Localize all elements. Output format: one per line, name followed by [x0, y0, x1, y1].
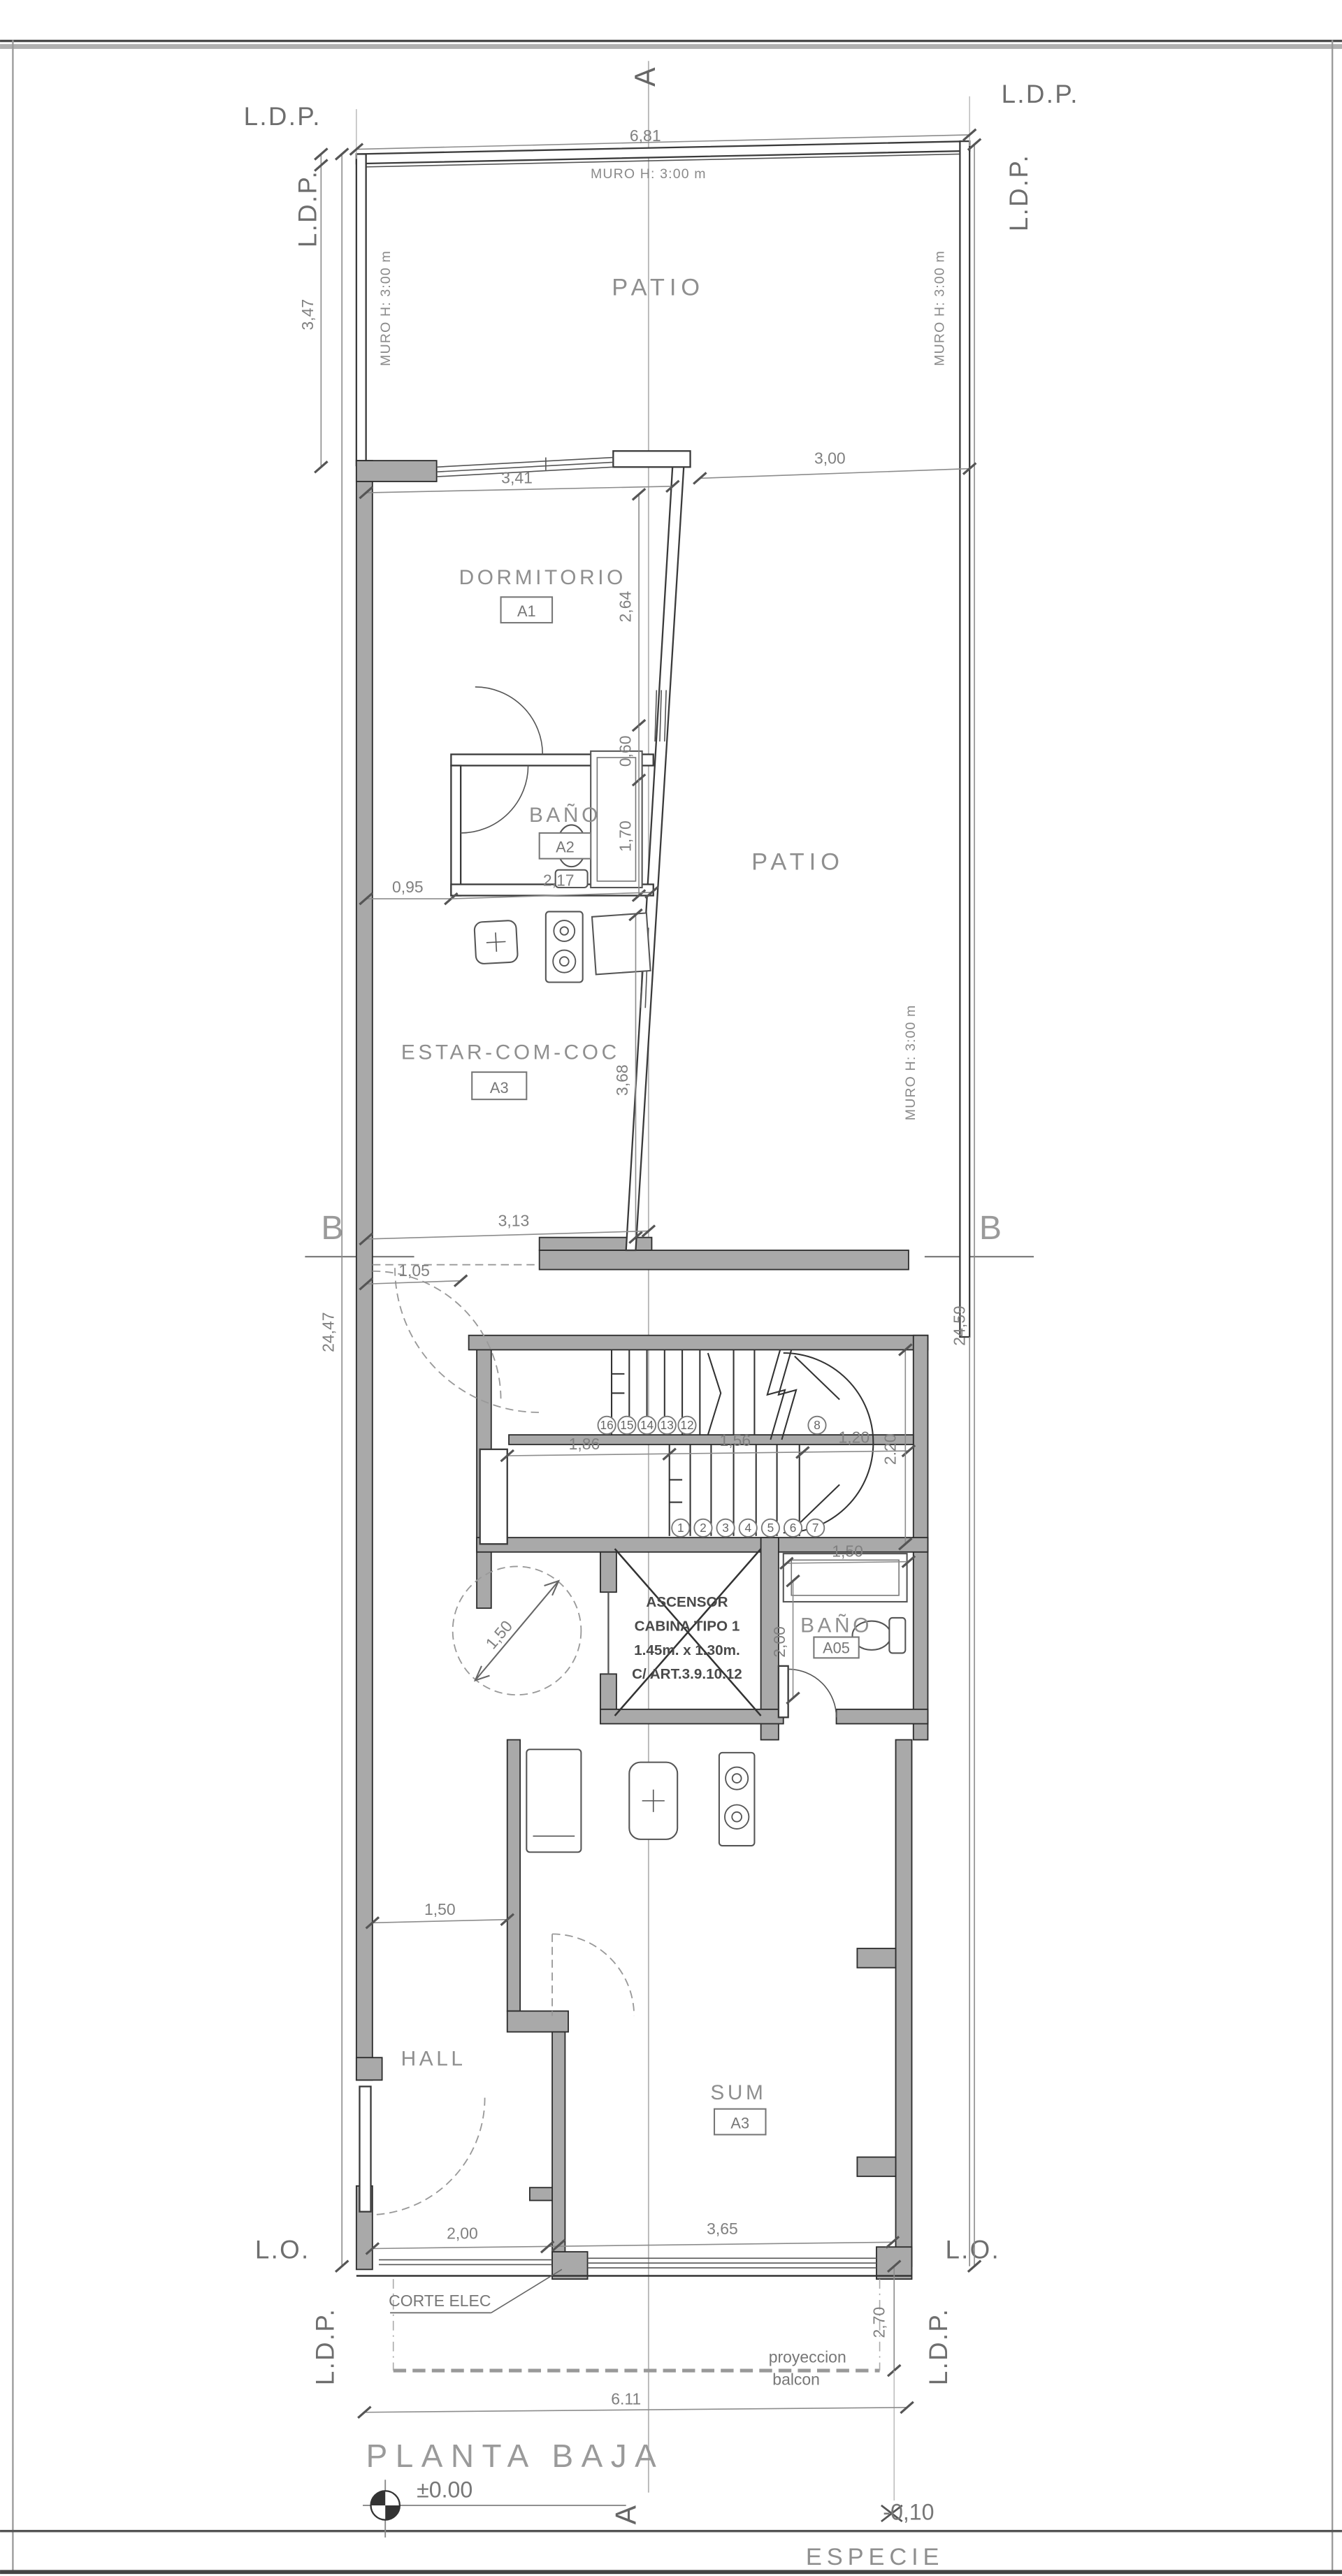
dim-winder: 1,20: [838, 1428, 870, 1447]
room-hall: HALL: [401, 2048, 466, 2071]
dim-patio-width: 3,00: [814, 449, 846, 468]
fridge-icon: [526, 1749, 581, 1852]
section-b-marker-right: B: [979, 1209, 1002, 1247]
dim-bano-width: 2,17: [543, 871, 575, 890]
plan-title: PLANTA BAJA: [366, 2438, 665, 2474]
dim-bano2-depth: 2,00: [770, 1626, 788, 1658]
tread-6: 6: [790, 1521, 797, 1535]
ldp-right-lower: L.D.P.: [924, 2308, 953, 2385]
floor-plan-sheet: A A B B L.D.P. L.D.P. L.D.P. L.D.P. L.D.…: [0, 0, 1342, 2576]
benchmark-icon: [363, 2480, 626, 2538]
title-block: PLANTA BAJA ±0.00 -0,10 ESPECIE ARBOREA: [363, 2438, 951, 2576]
dim-turn-circle: 1,50: [482, 1617, 516, 1653]
tread-5: 5: [767, 1521, 774, 1535]
tread-15: 15: [620, 1418, 633, 1432]
dim-stair-depth: 2.20: [881, 1433, 900, 1465]
turning-circle: 1,50: [453, 1566, 582, 1695]
dim-balcony-depth: 2,70: [870, 2307, 888, 2338]
dim-shower: 1,50: [832, 1542, 863, 1561]
muro-note-right-upper: MURO H: 3:00 m: [932, 250, 947, 366]
section-line-a: A A: [609, 61, 661, 2524]
dim-total-width: 6,81: [630, 126, 661, 145]
walls: [356, 461, 928, 2279]
fixtures: [474, 751, 907, 1852]
tag-dormitorio: A1: [517, 602, 536, 620]
level-zero: ±0.00: [417, 2477, 472, 2502]
dim-dorm-depth: 2,64: [616, 591, 635, 623]
dim-lot-left: 24,47: [319, 1312, 338, 1352]
tag-bano-a05: A05: [823, 1639, 850, 1656]
shower-a05-icon: [784, 1554, 907, 1602]
elevator-label-3: 1.45m. x 1.30m.: [634, 1642, 740, 1658]
tread-2: 2: [700, 1521, 707, 1535]
level-neg-marker-icon: -0,10: [881, 2500, 935, 2525]
tread-3: 3: [722, 1521, 729, 1535]
section-b-marker-left: B: [321, 1209, 343, 1247]
dim-flight: 1,56: [720, 1431, 751, 1449]
ldp-right-upper: L.D.P.: [1004, 154, 1033, 231]
tag-estar: A3: [490, 1079, 509, 1097]
sum-stove-icon: [719, 1753, 755, 1846]
room-estar: ESTAR-COM-COC: [401, 1041, 620, 1064]
tag-sum: A3: [730, 2114, 749, 2132]
bano-a2-door-arc: [461, 765, 528, 832]
room-bano-a05: BAÑO: [800, 1614, 872, 1637]
ldp-top-left: L.D.P.: [244, 102, 322, 131]
front-wall: [356, 2258, 912, 2275]
tread-14: 14: [640, 1418, 654, 1432]
section-line-b: B B: [305, 1209, 1034, 1257]
room-patio-lower: PATIO: [751, 849, 844, 876]
balcony-note-2: balcon: [772, 2371, 820, 2389]
dim-window: 0,60: [616, 735, 635, 767]
section-a-marker-bottom: A: [609, 2505, 642, 2525]
sum-door-arc: [552, 1934, 634, 2016]
lo-left: L.O.: [255, 2235, 310, 2264]
level-neg: -0,10: [883, 2500, 934, 2525]
muro-note-right-mid: MURO H: 3:00 m: [903, 1004, 918, 1120]
bano-a05-door-arc: [788, 1669, 837, 1717]
sheet-frame: [0, 40, 1342, 2573]
break-line-icon: [767, 1349, 785, 1440]
room-dormitorio: DORMITORIO: [459, 566, 626, 589]
section-a-marker-top: A: [629, 67, 661, 87]
room-sum: SUM: [710, 2081, 766, 2104]
room-bano-a2: BAÑO: [529, 803, 601, 827]
tread-12: 12: [680, 1418, 693, 1432]
dim-front-left: 2,00: [447, 2224, 478, 2243]
dim-dorm-width: 3,41: [501, 468, 533, 486]
counter-unit-icon: [592, 913, 651, 974]
tread-13: 13: [661, 1418, 674, 1432]
ldp-top-right: L.D.P.: [1002, 80, 1079, 108]
dim-estar-width: 3,13: [498, 1212, 530, 1230]
entry-door-arc: [371, 2098, 485, 2215]
elevator-label-2: CABINA TIPO 1: [635, 1618, 740, 1634]
dim-hall-width: 1,50: [424, 1900, 456, 1918]
dormitorio-door-arc: [475, 687, 542, 754]
room-patio-upper: PATIO: [612, 275, 705, 301]
dim-passage-2: 1,05: [398, 1261, 430, 1280]
stove-icon: [546, 911, 583, 982]
dim-patio-depth: 3,47: [298, 299, 317, 331]
dim-estar-depth: 3,68: [613, 1064, 631, 1096]
tread-1: 1: [677, 1521, 684, 1535]
tread-7: 7: [812, 1521, 819, 1535]
muro-note-top: MURO H: 3:00 m: [591, 166, 707, 182]
tread-8: 8: [814, 1418, 821, 1432]
ldp-left-upper: L.D.P.: [293, 170, 322, 247]
dim-front-total: 6.11: [611, 2389, 641, 2408]
corte-elec-label: CORTE ELEC: [389, 2292, 491, 2310]
dim-bano-depth: 1,70: [616, 820, 635, 852]
elevator-label-1: ASCENSOR: [646, 1594, 728, 1610]
lo-right: L.O.: [945, 2235, 1000, 2264]
dim-front-right: 3,65: [707, 2220, 738, 2238]
tread-16: 16: [600, 1418, 614, 1432]
ldp-left-lower: L.D.P.: [311, 2308, 340, 2385]
tread-4: 4: [744, 1521, 751, 1535]
dim-passage: 0,95: [392, 878, 424, 896]
species-label: ESPECIE: [806, 2544, 944, 2570]
muro-note-left: MURO H: 3:00 m: [378, 250, 394, 366]
tag-bano-a2: A2: [556, 838, 575, 855]
dim-landing: 1,86: [569, 1435, 600, 1453]
sink-icon: [474, 920, 518, 964]
elevator-label-4: C/ ART.3.9.10.12: [632, 1666, 742, 1682]
elevator-shaft: ASCENSOR CABINA TIPO 1 1.45m. x 1.30m. C…: [615, 1549, 761, 1716]
sum-sink-icon: [629, 1763, 677, 1839]
dim-lot-right: 24,59: [950, 1305, 968, 1345]
balcony-note-1: proyeccion: [769, 2348, 846, 2366]
